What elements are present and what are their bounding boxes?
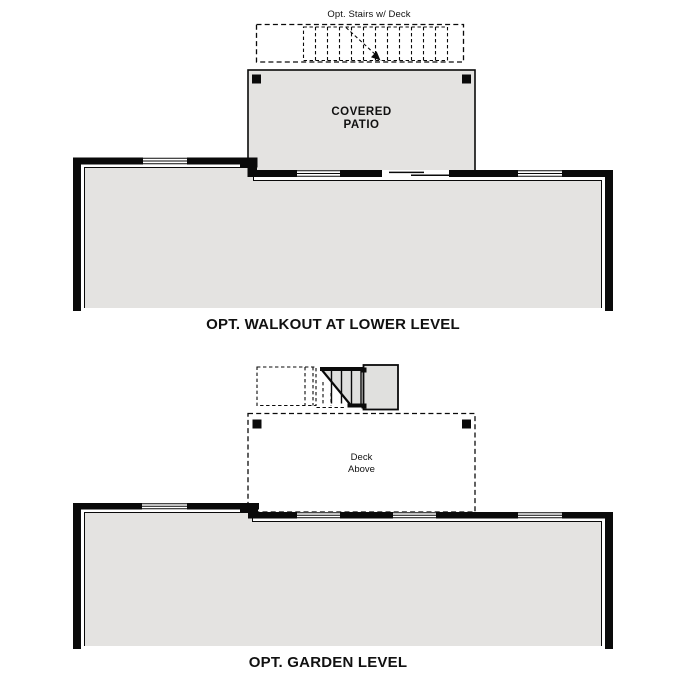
sliding-door [382,170,449,177]
walkout-interior-left [85,168,254,308]
covered-patio-label: COVERED PATIO [248,106,475,132]
deck-post-left [253,420,262,429]
garden-plan-geometry [73,365,613,649]
landing-post-top [362,368,367,373]
window [297,170,340,177]
window [142,503,187,510]
wall-left [73,158,81,312]
deck-above-label-line2: Above [248,464,475,476]
garden-house [73,503,613,649]
deck-above-label: Deck Above [248,452,475,475]
window [393,512,436,519]
garden-plan-caption: OPT. GARDEN LEVEL [48,654,608,671]
floorplan-drawing [0,0,687,687]
landing-post-bottom [362,404,367,409]
deck-post-right [462,420,471,429]
walkout-interior-right [254,181,602,308]
wall-right [605,512,613,649]
walkout-house [73,158,613,312]
patio-post-right [462,75,471,84]
walkout-plan-geometry [73,25,613,312]
stairs-landing [364,365,399,410]
stairs-top-rail [320,367,364,371]
window [518,170,562,177]
garden-interior-left [85,513,253,646]
window [518,512,562,519]
stairs-direction-arrow [346,28,377,56]
stairs-dashed-outline [257,367,316,406]
window [297,512,340,519]
covered-patio-label-line1: COVERED [248,106,475,119]
wall-right [605,170,613,311]
garden-interior-right [253,522,602,646]
wall-left [73,503,81,649]
walkout-plan-caption: OPT. WALKOUT AT LOWER LEVEL [53,316,613,333]
patio-post-left [252,75,261,84]
deck-above-label-line1: Deck [248,452,475,464]
covered-patio-label-line2: PATIO [248,119,475,132]
window [143,158,187,165]
opt-stairs-note: Opt. Stairs w/ Deck [265,9,473,20]
floorplan-sheet: Opt. Stairs w/ Deck COVERED PATIO OPT. W… [0,0,687,687]
stairs-dashed-outline [257,25,464,63]
garden-stairs [257,365,398,410]
walkout-opt-stairs-outline [257,25,464,63]
